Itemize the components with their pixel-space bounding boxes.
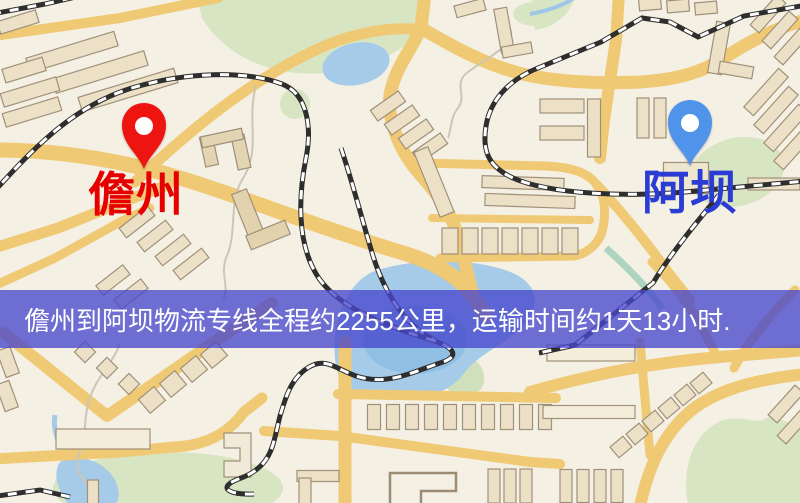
map-background [0, 0, 800, 503]
origin-label: 儋州 [88, 173, 184, 220]
origin-marker-hole [135, 117, 153, 135]
route-summary-text: 儋州到阿坝物流专线全程约2255公里，运输时间约1天13小时. [0, 301, 730, 338]
park-area [196, 0, 426, 74]
origin-marker-icon[interactable] [120, 101, 168, 169]
destination-label: 阿坝 [642, 171, 738, 218]
destination-marker-icon[interactable] [666, 98, 714, 166]
origin-marker-body [122, 103, 166, 169]
route-summary-banner: 儋州到阿坝物流专线全程约2255公里，运输时间约1天13小时. [0, 290, 800, 348]
destination-marker-body [668, 100, 712, 166]
destination-marker-hole [681, 114, 699, 132]
map-canvas[interactable]: 儋州 阿坝 儋州到阿坝物流专线全程约2255公里，运输时间约1天13小时. [0, 0, 800, 503]
